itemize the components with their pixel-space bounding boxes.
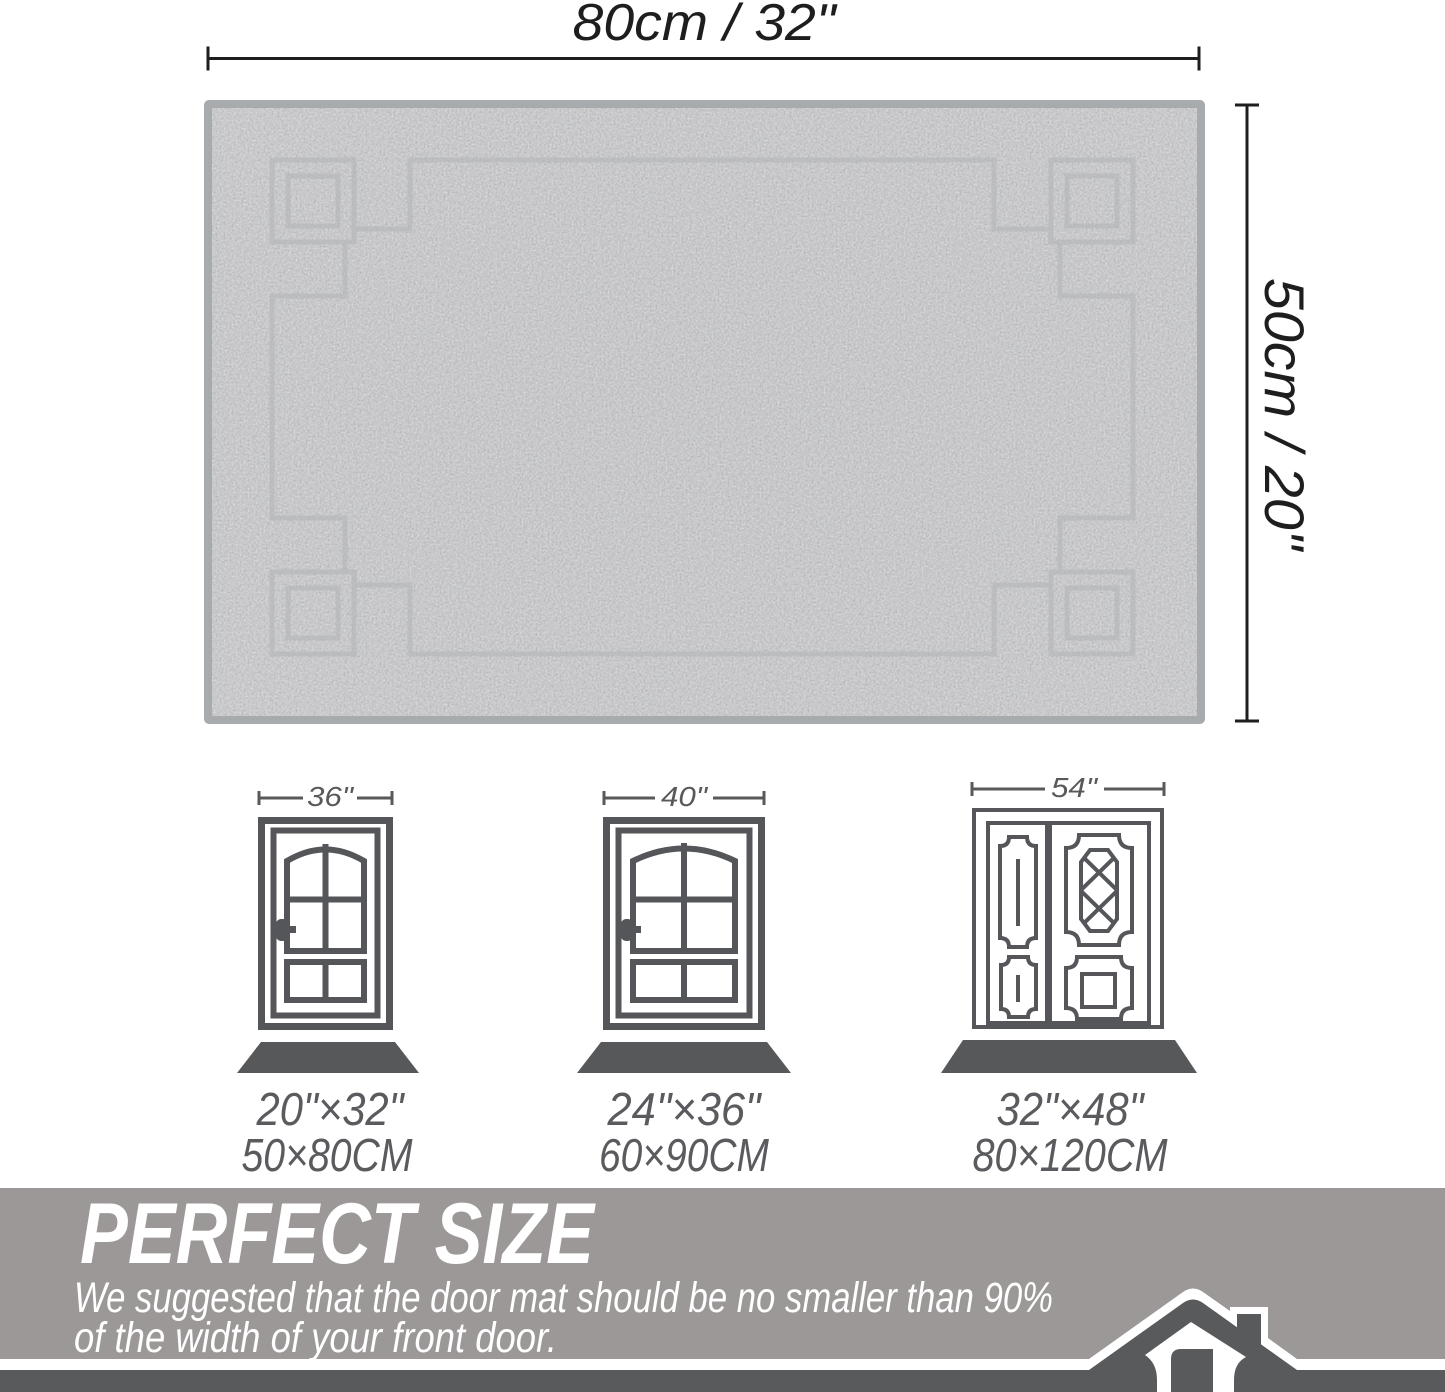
svg-text:60×90CM: 60×90CM (599, 1129, 770, 1181)
svg-text:PERFECT SIZE: PERFECT SIZE (80, 1186, 596, 1282)
svg-text:20"×32": 20"×32" (256, 1083, 406, 1135)
svg-text:50cm / 20": 50cm / 20" (1253, 278, 1316, 552)
svg-text:32"×48": 32"×48" (997, 1083, 1146, 1135)
svg-text:80cm / 32": 80cm / 32" (573, 0, 839, 52)
svg-text:80×120CM: 80×120CM (973, 1129, 1169, 1181)
svg-text:50×80CM: 50×80CM (242, 1129, 414, 1181)
svg-text:36": 36" (307, 781, 354, 812)
svg-text:24"×36": 24"×36" (607, 1083, 763, 1135)
svg-text:of the width of your front doo: of the width of your front door. (74, 1314, 557, 1362)
svg-text:40": 40" (661, 781, 708, 812)
svg-text:54": 54" (1051, 772, 1098, 803)
